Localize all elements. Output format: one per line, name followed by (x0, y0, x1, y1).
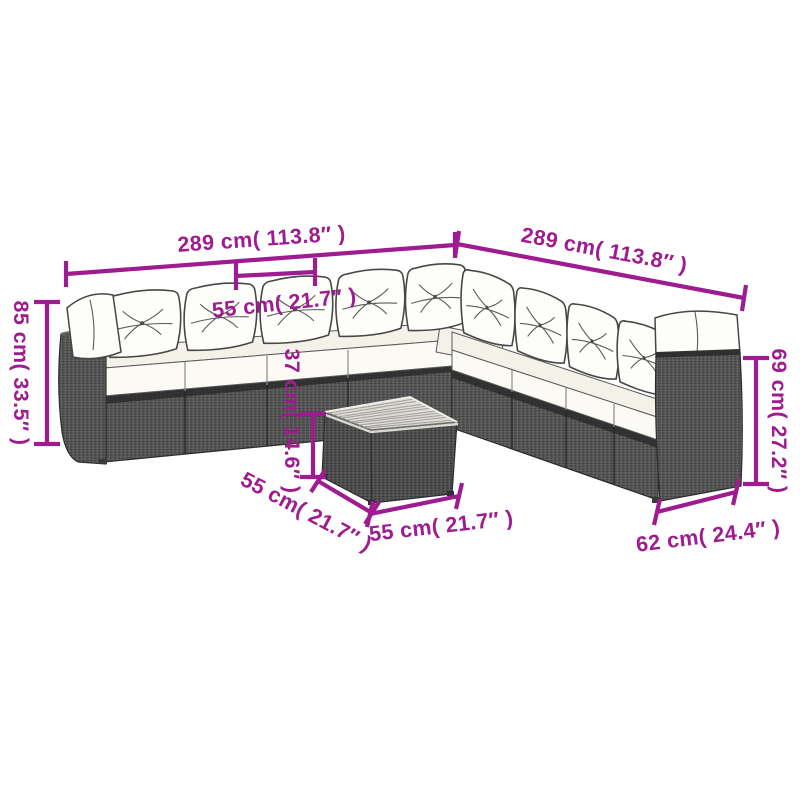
dimension-line (34, 302, 60, 444)
dimension-label: 289 cm( 113.8″ ) (177, 221, 347, 257)
dimension-label: 69 cm( 27.2″ ) (767, 349, 791, 494)
dim-arm-height: 69 cm( 27.2″ ) (743, 349, 791, 494)
table-right-side (371, 422, 457, 503)
coffee-table (320, 397, 458, 505)
dimension-label: 37 cm( 14.6″ ) (280, 349, 304, 494)
back-cushion-corner (405, 261, 466, 332)
dim-back-height: 85 cm( 33.5″ ) (9, 301, 60, 446)
dimension-line (743, 358, 769, 484)
product-dimension-diagram: 289 cm( 113.8″ ) 289 cm( 113.8″ ) 55 cm(… (0, 0, 800, 800)
dimension-label: 85 cm( 33.5″ ) (9, 301, 33, 446)
dimension-label: 289 cm( 113.8″ ) (519, 223, 689, 278)
diagram-canvas: 289 cm( 113.8″ ) 289 cm( 113.8″ ) 55 cm(… (0, 0, 800, 800)
back-cushion-right-3 (567, 299, 619, 384)
right-armrest (656, 354, 743, 501)
